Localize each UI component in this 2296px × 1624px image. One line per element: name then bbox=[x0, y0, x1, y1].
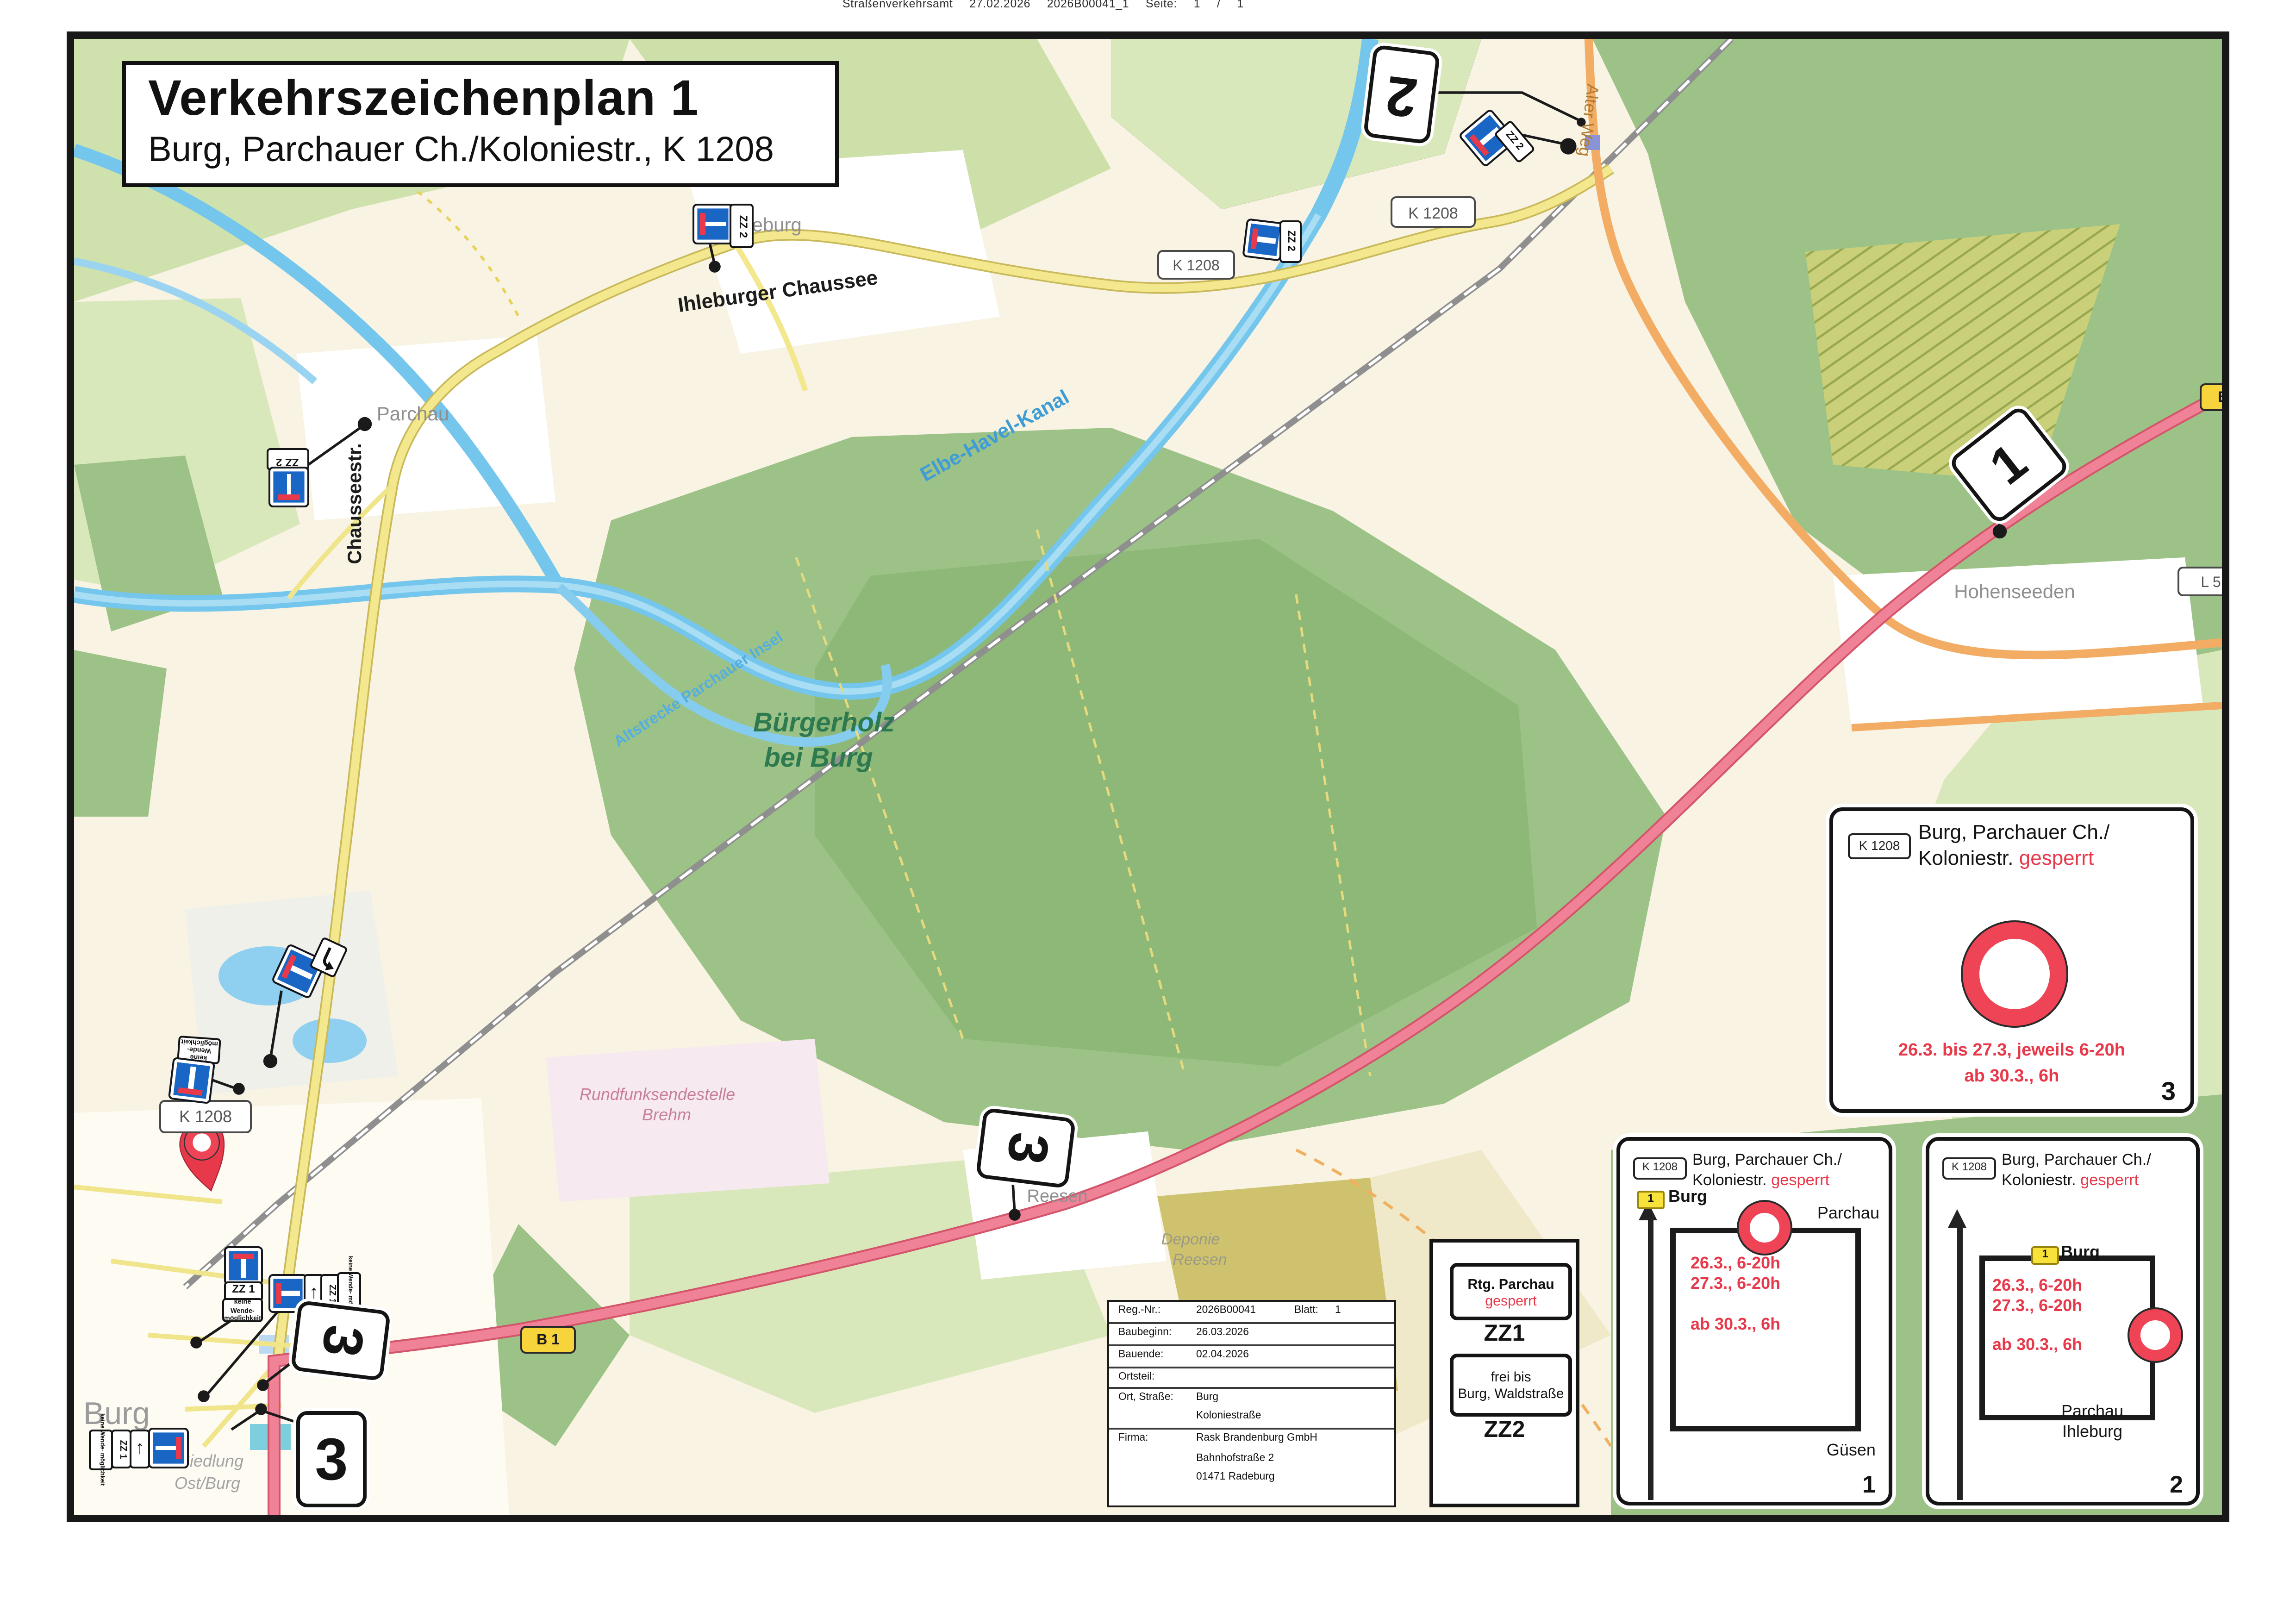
detail-title-gesperrt: gesperrt bbox=[2080, 1169, 2139, 1188]
town-label-reesen: Reesen bbox=[1027, 1187, 1088, 1206]
area-label-buergerholz-1: Bürgerholz bbox=[753, 707, 895, 737]
plaque-zz1-label: ZZ 1 bbox=[325, 1284, 336, 1303]
plaque-arrow-up: ↑ bbox=[130, 1430, 150, 1468]
table-row-baubeginn: Baubeginn: 26.03.2026 bbox=[1109, 1324, 1394, 1346]
detail-box-2-times-3: ab 30.3., 6h bbox=[1992, 1335, 2082, 1354]
plaque-zz1-label: ZZ 1 bbox=[116, 1439, 126, 1458]
detail-box-3-times-1: 26.3. bis 27.3, jeweils 6-20h bbox=[1833, 1041, 2190, 1061]
zz2-line1: frei bis bbox=[1491, 1368, 1531, 1385]
road-badge-l5-clipped: L 5 bbox=[2177, 567, 2229, 596]
direction-arrow-line bbox=[1956, 1226, 1962, 1500]
zz1-line2: gesperrt bbox=[1485, 1292, 1536, 1308]
hook-arrow-icon bbox=[315, 943, 342, 972]
plan-subtitle: Burg, Parchauer Ch./Koloniestr., K 1208 bbox=[148, 130, 835, 174]
kw-line2: möglichkeit bbox=[224, 1314, 261, 1321]
plaque-keine-wende-label: keine Wende- möglichkeit bbox=[98, 1414, 104, 1486]
detail-box-1-title: Burg, Parchauer Ch./ Koloniestr. gesperr… bbox=[1692, 1150, 1842, 1189]
settlement-parchau bbox=[296, 335, 555, 520]
detail-title-line2: Koloniestr. bbox=[1692, 1169, 1767, 1188]
route-badge-b1: 1 bbox=[1637, 1191, 1665, 1209]
dead-end-sign-icon bbox=[168, 1057, 216, 1105]
plaque-zz2-label: ZZ 2 bbox=[1285, 231, 1297, 252]
ort-value-2: Koloniestraße bbox=[1196, 1411, 1261, 1422]
plan-title: Verkehrszeichenplan 1 bbox=[148, 69, 835, 130]
dead-end-sign-icon bbox=[148, 1428, 189, 1468]
blatt-value: 1 bbox=[1335, 1306, 1341, 1318]
bauende-value: 02.04.2026 bbox=[1196, 1351, 1249, 1362]
road-badge-b1: B 1 bbox=[520, 1326, 576, 1354]
detail-title-gesperrt: gesperrt bbox=[2019, 847, 2094, 869]
detail-box-1: K 1208 Burg, Parchauer Ch./ Koloniestr. … bbox=[1616, 1137, 1892, 1505]
kw-line1: keine Wende- bbox=[99, 1414, 106, 1452]
lake bbox=[293, 1018, 367, 1063]
detail-title-line2: Koloniestr. bbox=[1918, 847, 2014, 869]
dead-end-sign-icon bbox=[1242, 218, 1285, 262]
road-badge-k1208: K 1208 bbox=[1391, 196, 1476, 228]
reg-value: 2026B00041 bbox=[1196, 1306, 1256, 1318]
road-badge-b1-clipped: B 1 bbox=[2200, 383, 2229, 411]
ortsteil-label: Ortsteil: bbox=[1118, 1373, 1154, 1384]
kw-line2: möglichkeit bbox=[181, 1037, 218, 1048]
table-row-reg: Reg.-Nr.: 2026B00041 Blatt: 1 bbox=[1109, 1302, 1394, 1324]
detail-title-line1: Burg, Parchauer Ch./ bbox=[1692, 1150, 1842, 1168]
plaque-zz2-label: ZZ 2 bbox=[736, 214, 748, 237]
zz2-line2: Burg, Waldstraße bbox=[1458, 1385, 1564, 1402]
firma-value-3: 01471 Radeburg bbox=[1196, 1471, 1275, 1482]
legend-box: Rtg. Parchau gesperrt ZZ1 frei bis Burg,… bbox=[1429, 1239, 1579, 1507]
legend-zz1-name: ZZ1 bbox=[1433, 1320, 1576, 1346]
town-label-burg: Burg bbox=[83, 1396, 150, 1431]
dead-end-sign-icon bbox=[268, 467, 309, 507]
area-label-buergerholz-2: bei Burg bbox=[764, 743, 873, 773]
town-label-hohenseeden: Hohenseeden bbox=[1954, 581, 2075, 602]
reg-label: Reg.-Nr.: bbox=[1118, 1306, 1160, 1318]
detail-title-line1: Burg, Parchauer Ch./ bbox=[1918, 822, 2109, 844]
road-badge-k1208: K 1208 bbox=[159, 1100, 252, 1133]
detail-marker-3: 3 bbox=[975, 1107, 1076, 1188]
plaque-zz2-label: ZZ 2 bbox=[276, 453, 299, 466]
route-badge-b1: 1 bbox=[2031, 1246, 2059, 1265]
plaque-keine-wende-label: keine Wende-möglichkeit bbox=[224, 1299, 261, 1321]
detail-box-1-right-label: Parchau bbox=[1817, 1204, 1879, 1222]
detail-box-1-bottom-label: Güsen bbox=[1827, 1441, 1876, 1459]
detail-marker-3: 3 bbox=[296, 1411, 367, 1507]
town-label-parchau: Parchau bbox=[377, 403, 449, 425]
legend-sign-zz1: Rtg. Parchau gesperrt bbox=[1450, 1263, 1572, 1320]
map-graphic: Ihleburg Parchau Hohenseeden Reesen Burg… bbox=[74, 39, 2222, 1515]
area-label-brehm-1: Rundfunksendestelle bbox=[580, 1085, 735, 1104]
legend-zz2-name: ZZ2 bbox=[1433, 1417, 1576, 1443]
detail-title-gesperrt: gesperrt bbox=[1771, 1169, 1829, 1188]
plaque-zz2-label: ZZ 2 bbox=[1504, 130, 1526, 153]
firma-value-2: Bahnhofstraße 2 bbox=[1196, 1453, 1274, 1464]
firma-value-1: Rask Brandenburg GmbH bbox=[1196, 1434, 1317, 1445]
area-label-deponie-2: Reesen bbox=[1173, 1251, 1227, 1268]
plaque-zz2: ZZ 2 bbox=[1279, 220, 1302, 263]
dead-end-sign-icon bbox=[693, 204, 733, 244]
kw-line2: möglichkeit bbox=[99, 1453, 106, 1486]
title-box: Verkehrszeichenplan 1 Burg, Parchauer Ch… bbox=[122, 61, 839, 187]
detail-box-2-times-2: 27.3., 6-20h bbox=[1992, 1296, 2082, 1315]
prohibition-sign-icon bbox=[2129, 1309, 2181, 1361]
plaque-keine-wende: keine Wende-möglichkeit bbox=[222, 1298, 263, 1322]
map-frame: Ihleburg Parchau Hohenseeden Reesen Burg… bbox=[67, 31, 2229, 1522]
zz1-line1: Rtg. Parchau bbox=[1467, 1275, 1554, 1292]
detail-box-1-number: 1 bbox=[1862, 1470, 1876, 1498]
baubeginn-label: Baubeginn: bbox=[1118, 1329, 1172, 1340]
legend-sign-zz2: frei bis Burg, Waldstraße bbox=[1450, 1354, 1572, 1417]
prohibition-sign-icon bbox=[1739, 1202, 1791, 1254]
page-header-text: Straßenverkehrsamt 27.02.2026 2026B00041… bbox=[842, 0, 1805, 11]
table-row-ortsteil: Ortsteil: bbox=[1109, 1368, 1394, 1389]
kw-line1: keine Wende- bbox=[231, 1299, 255, 1314]
kw-line1: keine Wende- bbox=[347, 1256, 354, 1294]
detail-box-2-times-1: 26.3., 6-20h bbox=[1992, 1276, 2082, 1294]
ort-value-1: Burg bbox=[1196, 1393, 1218, 1405]
detail-box-2-top-label: Burg bbox=[2061, 1243, 2100, 1261]
direction-arrow-icon bbox=[1948, 1209, 1966, 1228]
prohibition-sign-icon bbox=[1963, 922, 2066, 1026]
bauende-label: Bauende: bbox=[1118, 1351, 1163, 1362]
detail-marker-3: 3 bbox=[290, 1300, 391, 1381]
detail-box-2-badge: K 1208 bbox=[1942, 1157, 1996, 1180]
detail-box-1-top-label: Burg bbox=[1668, 1187, 1707, 1206]
blatt-label: Blatt: bbox=[1294, 1306, 1318, 1318]
table-row-bauende: Bauende: 02.04.2026 bbox=[1109, 1346, 1394, 1368]
table-row-ort-strasse: Ort, Straße: Burg Koloniestraße bbox=[1109, 1389, 1394, 1430]
plaque-zz2: ZZ 2 bbox=[730, 204, 754, 248]
direction-arrow-line bbox=[1647, 1218, 1653, 1500]
info-table: Reg.-Nr.: 2026B00041 Blatt: 1 Baubeginn:… bbox=[1107, 1300, 1396, 1507]
plaque-keine-wende: keine Wende- möglichkeit bbox=[89, 1430, 113, 1470]
detail-box-2-bottom-label-2: Ihleburg bbox=[2037, 1422, 2148, 1441]
detail-box-1-times-3: ab 30.3., 6h bbox=[1691, 1315, 1780, 1333]
detail-box-1-times-1: 26.3., 6-20h bbox=[1691, 1254, 1780, 1272]
area-label-siedlung-2: Ost/Burg bbox=[175, 1474, 240, 1493]
detail-box-2-title: Burg, Parchauer Ch./ Koloniestr. gesperr… bbox=[2002, 1150, 2151, 1189]
area-label-deponie-1: Deponie bbox=[1161, 1230, 1220, 1248]
baubeginn-value: 26.03.2026 bbox=[1196, 1329, 1249, 1340]
detail-box-1-times-2: 27.3., 6-20h bbox=[1691, 1274, 1780, 1293]
detail-box-2: K 1208 Burg, Parchauer Ch./ Koloniestr. … bbox=[1926, 1137, 2200, 1505]
detail-box-1-badge: K 1208 bbox=[1633, 1157, 1687, 1180]
road-badge-k1208: K 1208 bbox=[1157, 250, 1235, 280]
area-label-brehm-2: Brehm bbox=[642, 1105, 691, 1124]
detail-box-3-times-2: ab 30.3., 6h bbox=[1833, 1067, 2190, 1087]
ort-label: Ort, Straße: bbox=[1118, 1393, 1173, 1405]
dead-end-sign-icon bbox=[224, 1246, 263, 1285]
detail-box-2-bottom-label-1: Parchau bbox=[2037, 1402, 2148, 1420]
table-row-firma: Firma: Rask Brandenburg GmbH Bahnhofstra… bbox=[1109, 1430, 1394, 1504]
street-label-chausseestr: Chausseestr. bbox=[343, 443, 365, 564]
detail-box-2-number: 2 bbox=[2170, 1470, 2183, 1498]
firma-label: Firma: bbox=[1118, 1434, 1148, 1445]
document-page: Straßenverkehrsamt 27.02.2026 2026B00041… bbox=[0, 0, 2296, 1624]
detail-box-3-badge: K 1208 bbox=[1848, 833, 1911, 859]
detail-box-3: K 1208 Burg, Parchauer Ch./ Koloniestr. … bbox=[1829, 807, 2194, 1113]
detail-box-3-title: Burg, Parchauer Ch./ Koloniestr. gesperr… bbox=[1918, 822, 2109, 872]
detail-title-line1: Burg, Parchauer Ch./ bbox=[2002, 1150, 2151, 1168]
plaque-zz1: ZZ 1 bbox=[111, 1430, 131, 1468]
detail-marker-2: 2 bbox=[1363, 44, 1440, 144]
detail-title-line2: Koloniestr. bbox=[2002, 1169, 2076, 1188]
